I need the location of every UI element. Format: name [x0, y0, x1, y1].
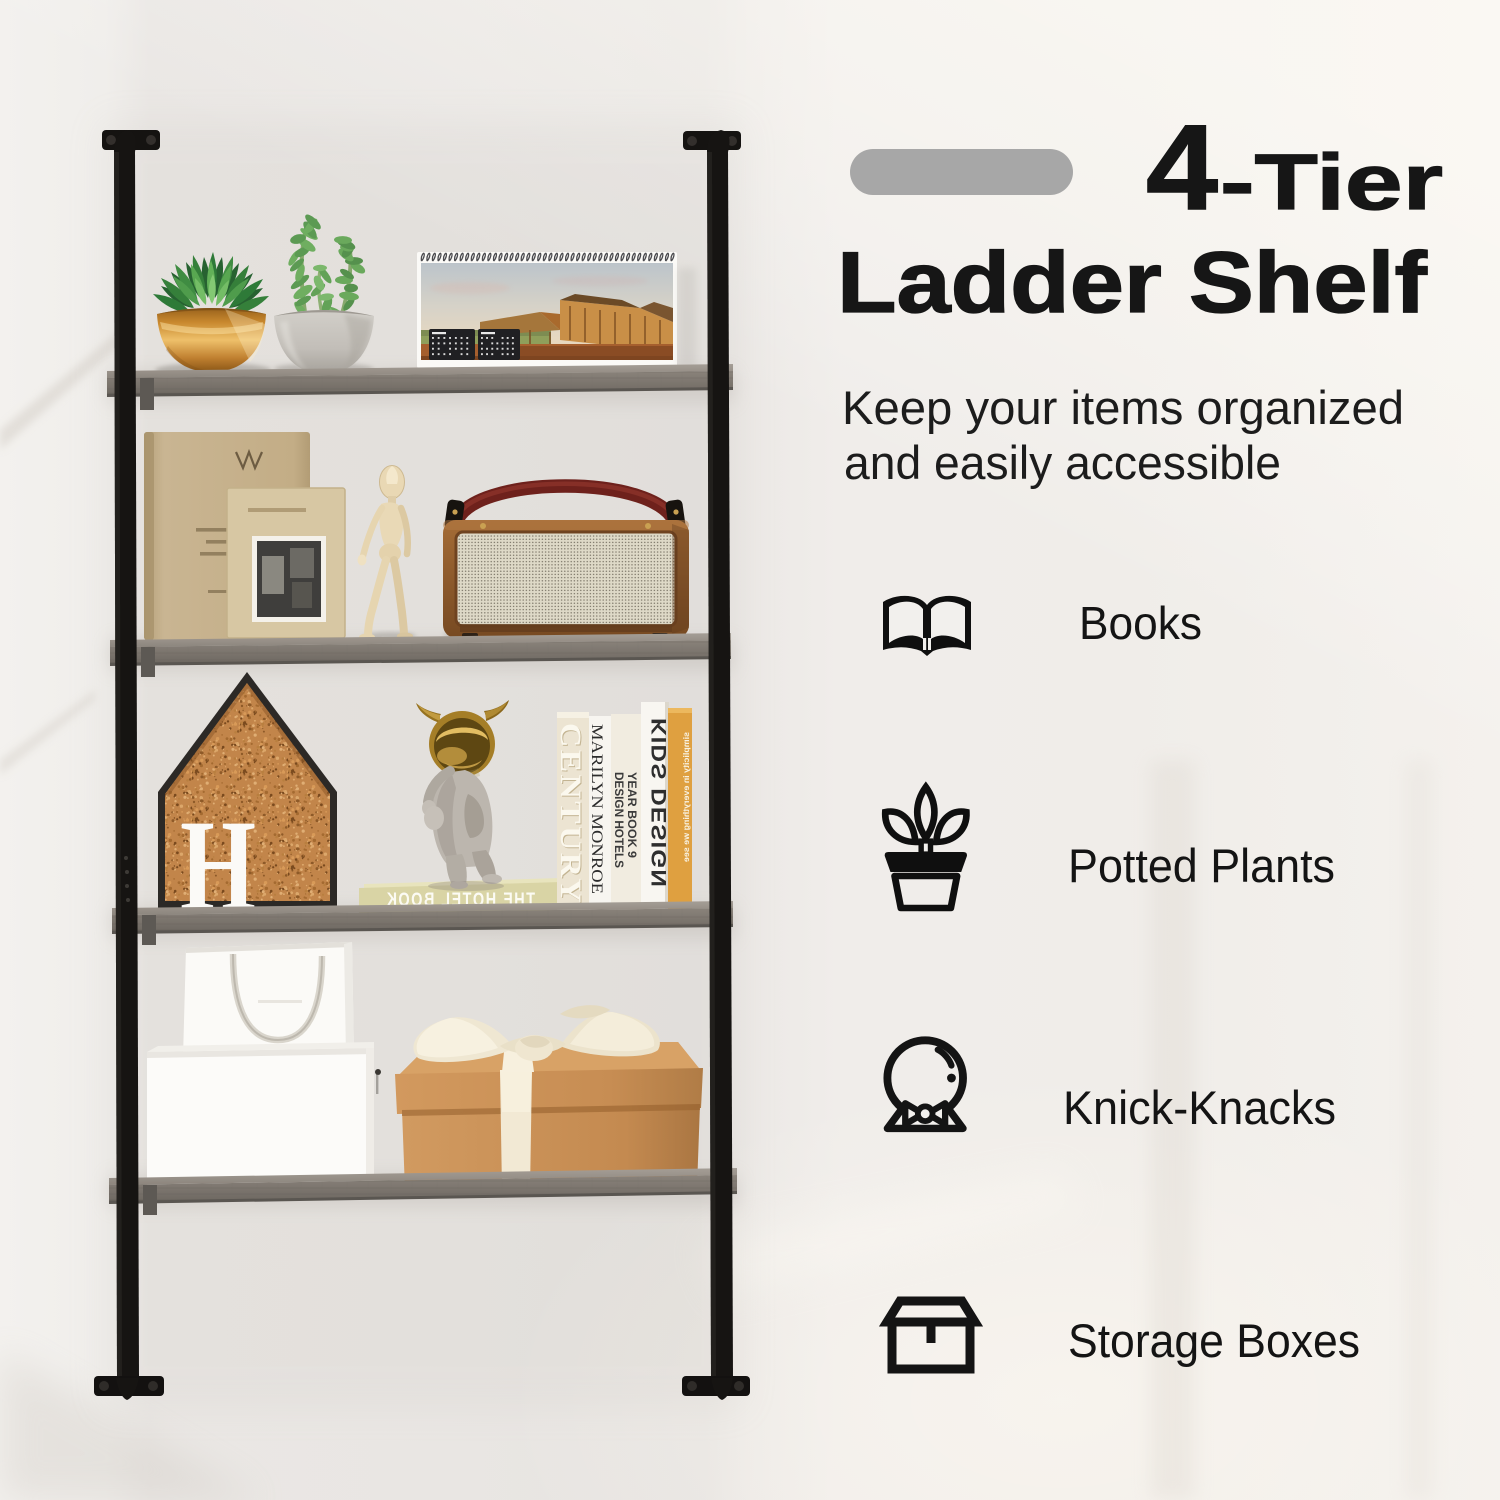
svg-text:YEAR BOOK 9: YEAR BOOK 9: [625, 772, 637, 858]
svg-text:Ladder Shelf: Ladder Shelf: [837, 235, 1427, 331]
svg-text:KIDS DESIGN: KIDS DESIGN: [648, 718, 671, 888]
svg-text:4: 4: [1146, 99, 1218, 235]
svg-text:and easily accessible: and easily accessible: [844, 436, 1281, 489]
svg-text:CENTURY: CENTURY: [554, 723, 587, 905]
svg-text:simplicity in everything we se: simplicity in everything we see: [681, 732, 691, 862]
svg-text:Keep your items organized: Keep your items organized: [842, 381, 1404, 434]
svg-text:Knick-Knacks: Knick-Knacks: [1063, 1081, 1336, 1134]
svg-text:Potted Plants: Potted Plants: [1068, 839, 1335, 892]
svg-text:-Tier: -Tier: [1220, 137, 1443, 226]
svg-text:Storage Boxes: Storage Boxes: [1068, 1314, 1360, 1367]
svg-text:Books: Books: [1079, 597, 1202, 649]
svg-text:DESIGN HOTELS: DESIGN HOTELS: [612, 772, 624, 868]
svg-text:MARILYN MONROE: MARILYN MONROE: [588, 724, 605, 894]
